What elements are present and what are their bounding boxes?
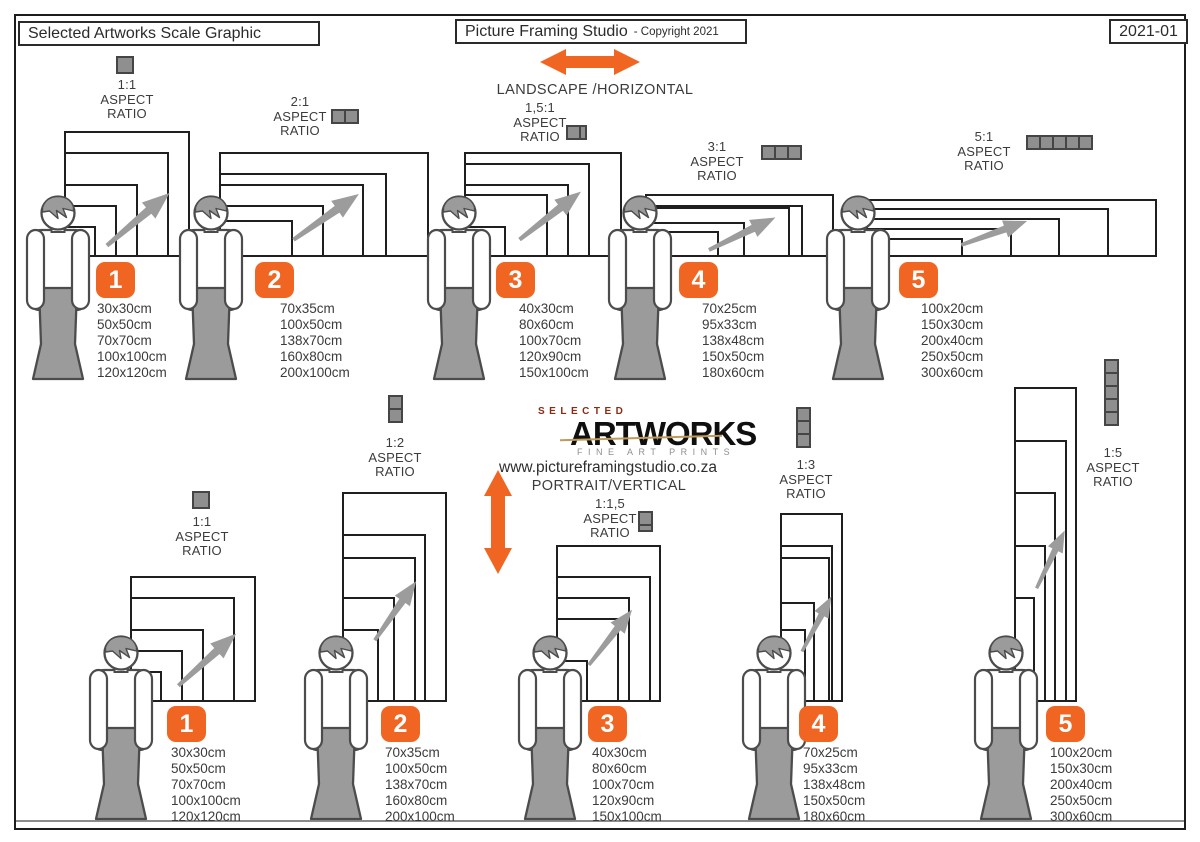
size-item: 138x70cm [280, 333, 350, 349]
size-item: 250x50cm [921, 349, 983, 365]
size-item: 250x50cm [1050, 793, 1112, 809]
size-item: 138x48cm [803, 777, 865, 793]
size-item: 70x35cm [385, 745, 455, 761]
person-figure-icon [511, 632, 589, 822]
size-item: 180x60cm [702, 365, 764, 381]
size-item: 70x25cm [803, 745, 865, 761]
size-item: 50x50cm [97, 317, 167, 333]
size-list: 40x30cm80x60cm100x70cm120x90cm150x100cm [519, 301, 589, 381]
group-number-badge: 2 [381, 706, 420, 742]
size-list: 100x20cm150x30cm200x40cm250x50cm300x60cm [1050, 745, 1112, 825]
group-number-badge: 5 [1046, 706, 1085, 742]
group-number: 2 [268, 266, 282, 295]
size-item: 300x60cm [1050, 809, 1112, 825]
size-item: 70x70cm [97, 333, 167, 349]
size-item: 200x40cm [921, 333, 983, 349]
nested-frames [219, 152, 429, 257]
size-item: 100x70cm [519, 333, 589, 349]
size-item: 50x50cm [171, 761, 241, 777]
size-item: 200x40cm [1050, 777, 1112, 793]
size-item: 70x35cm [280, 301, 350, 317]
group-number: 5 [1059, 710, 1073, 739]
size-list: 100x20cm150x30cm200x40cm250x50cm300x60cm [921, 301, 983, 381]
size-item: 30x30cm [171, 745, 241, 761]
aspect-ratio-icon [1104, 359, 1119, 426]
person-figure [511, 632, 589, 822]
size-item: 138x70cm [385, 777, 455, 793]
person-figure [82, 632, 160, 822]
size-item: 100x20cm [921, 301, 983, 317]
size-item: 160x80cm [385, 793, 455, 809]
group-number-badge: 3 [588, 706, 627, 742]
person-figure [819, 192, 897, 382]
person-figure [297, 632, 375, 822]
size-item: 95x33cm [702, 317, 764, 333]
size-item: 80x60cm [519, 317, 589, 333]
icon-square [1104, 411, 1119, 426]
group-number-badge: 2 [255, 262, 294, 298]
size-item: 80x60cm [592, 761, 662, 777]
group-number-badge: 4 [679, 262, 718, 298]
size-item: 100x50cm [280, 317, 350, 333]
person-figure [601, 192, 679, 382]
ratio-value: 1:5 [1078, 446, 1148, 461]
group-number-badge: 1 [96, 262, 135, 298]
person-figure [967, 632, 1045, 822]
size-item: 150x50cm [702, 349, 764, 365]
size-item: 200x100cm [280, 365, 350, 381]
person-figure [19, 192, 97, 382]
group-number: 1 [109, 266, 123, 295]
ratio-word: RATIO [1078, 475, 1148, 490]
person-figure-icon [297, 632, 375, 822]
size-item: 200x100cm [385, 809, 455, 825]
group-number: 2 [394, 710, 408, 739]
person-figure-icon [82, 632, 160, 822]
size-item: 70x70cm [171, 777, 241, 793]
size-item: 100x100cm [97, 349, 167, 365]
size-list: 70x25cm95x33cm138x48cm150x50cm180x60cm [803, 745, 865, 825]
size-item: 95x33cm [803, 761, 865, 777]
size-item: 100x100cm [171, 793, 241, 809]
size-item: 150x50cm [803, 793, 865, 809]
size-item: 150x30cm [921, 317, 983, 333]
group-number: 1 [180, 710, 194, 739]
size-item: 150x30cm [1050, 761, 1112, 777]
size-list: 40x30cm80x60cm100x70cm120x90cm150x100cm [592, 745, 662, 825]
group-number: 4 [692, 266, 706, 295]
person-figure [420, 192, 498, 382]
size-item: 180x60cm [803, 809, 865, 825]
group-number-badge: 1 [167, 706, 206, 742]
person-figure-icon [819, 192, 897, 382]
size-list: 70x35cm100x50cm138x70cm160x80cm200x100cm [385, 745, 455, 825]
size-item: 160x80cm [280, 349, 350, 365]
group-number: 4 [812, 710, 826, 739]
size-item: 30x30cm [97, 301, 167, 317]
size-item: 120x90cm [519, 349, 589, 365]
person-figure-icon [172, 192, 250, 382]
size-item: 100x50cm [385, 761, 455, 777]
size-item: 40x30cm [519, 301, 589, 317]
aspect-word: ASPECT [1078, 461, 1148, 476]
size-list: 30x30cm50x50cm70x70cm100x100cm120x120cm [97, 301, 167, 381]
nested-frames [866, 199, 1157, 257]
size-item: 100x20cm [1050, 745, 1112, 761]
size-item: 70x25cm [702, 301, 764, 317]
group-number: 5 [912, 266, 926, 295]
group-number-badge: 5 [899, 262, 938, 298]
size-item: 300x60cm [921, 365, 983, 381]
person-figure-icon [19, 192, 97, 382]
person-figure-icon [601, 192, 679, 382]
size-item: 150x100cm [519, 365, 589, 381]
person-figure [172, 192, 250, 382]
size-item: 120x120cm [97, 365, 167, 381]
scale-graphic-page: Selected Artworks Scale Graphic Picture … [0, 0, 1200, 842]
group-number-badge: 3 [496, 262, 535, 298]
aspect-ratio-label: 1:5 ASPECT RATIO [1078, 446, 1148, 490]
size-list: 70x25cm95x33cm138x48cm150x50cm180x60cm [702, 301, 764, 381]
size-item: 40x30cm [592, 745, 662, 761]
size-item: 150x100cm [592, 809, 662, 825]
group-number: 3 [509, 266, 523, 295]
size-item: 100x70cm [592, 777, 662, 793]
person-figure-icon [967, 632, 1045, 822]
size-list: 70x35cm100x50cm138x70cm160x80cm200x100cm [280, 301, 350, 381]
group-number-badge: 4 [799, 706, 838, 742]
group-number: 3 [601, 710, 615, 739]
size-item: 138x48cm [702, 333, 764, 349]
size-item: 120x90cm [592, 793, 662, 809]
size-item: 120x120cm [171, 809, 241, 825]
person-figure-icon [420, 192, 498, 382]
size-list: 30x30cm50x50cm70x70cm100x100cm120x120cm [171, 745, 241, 825]
